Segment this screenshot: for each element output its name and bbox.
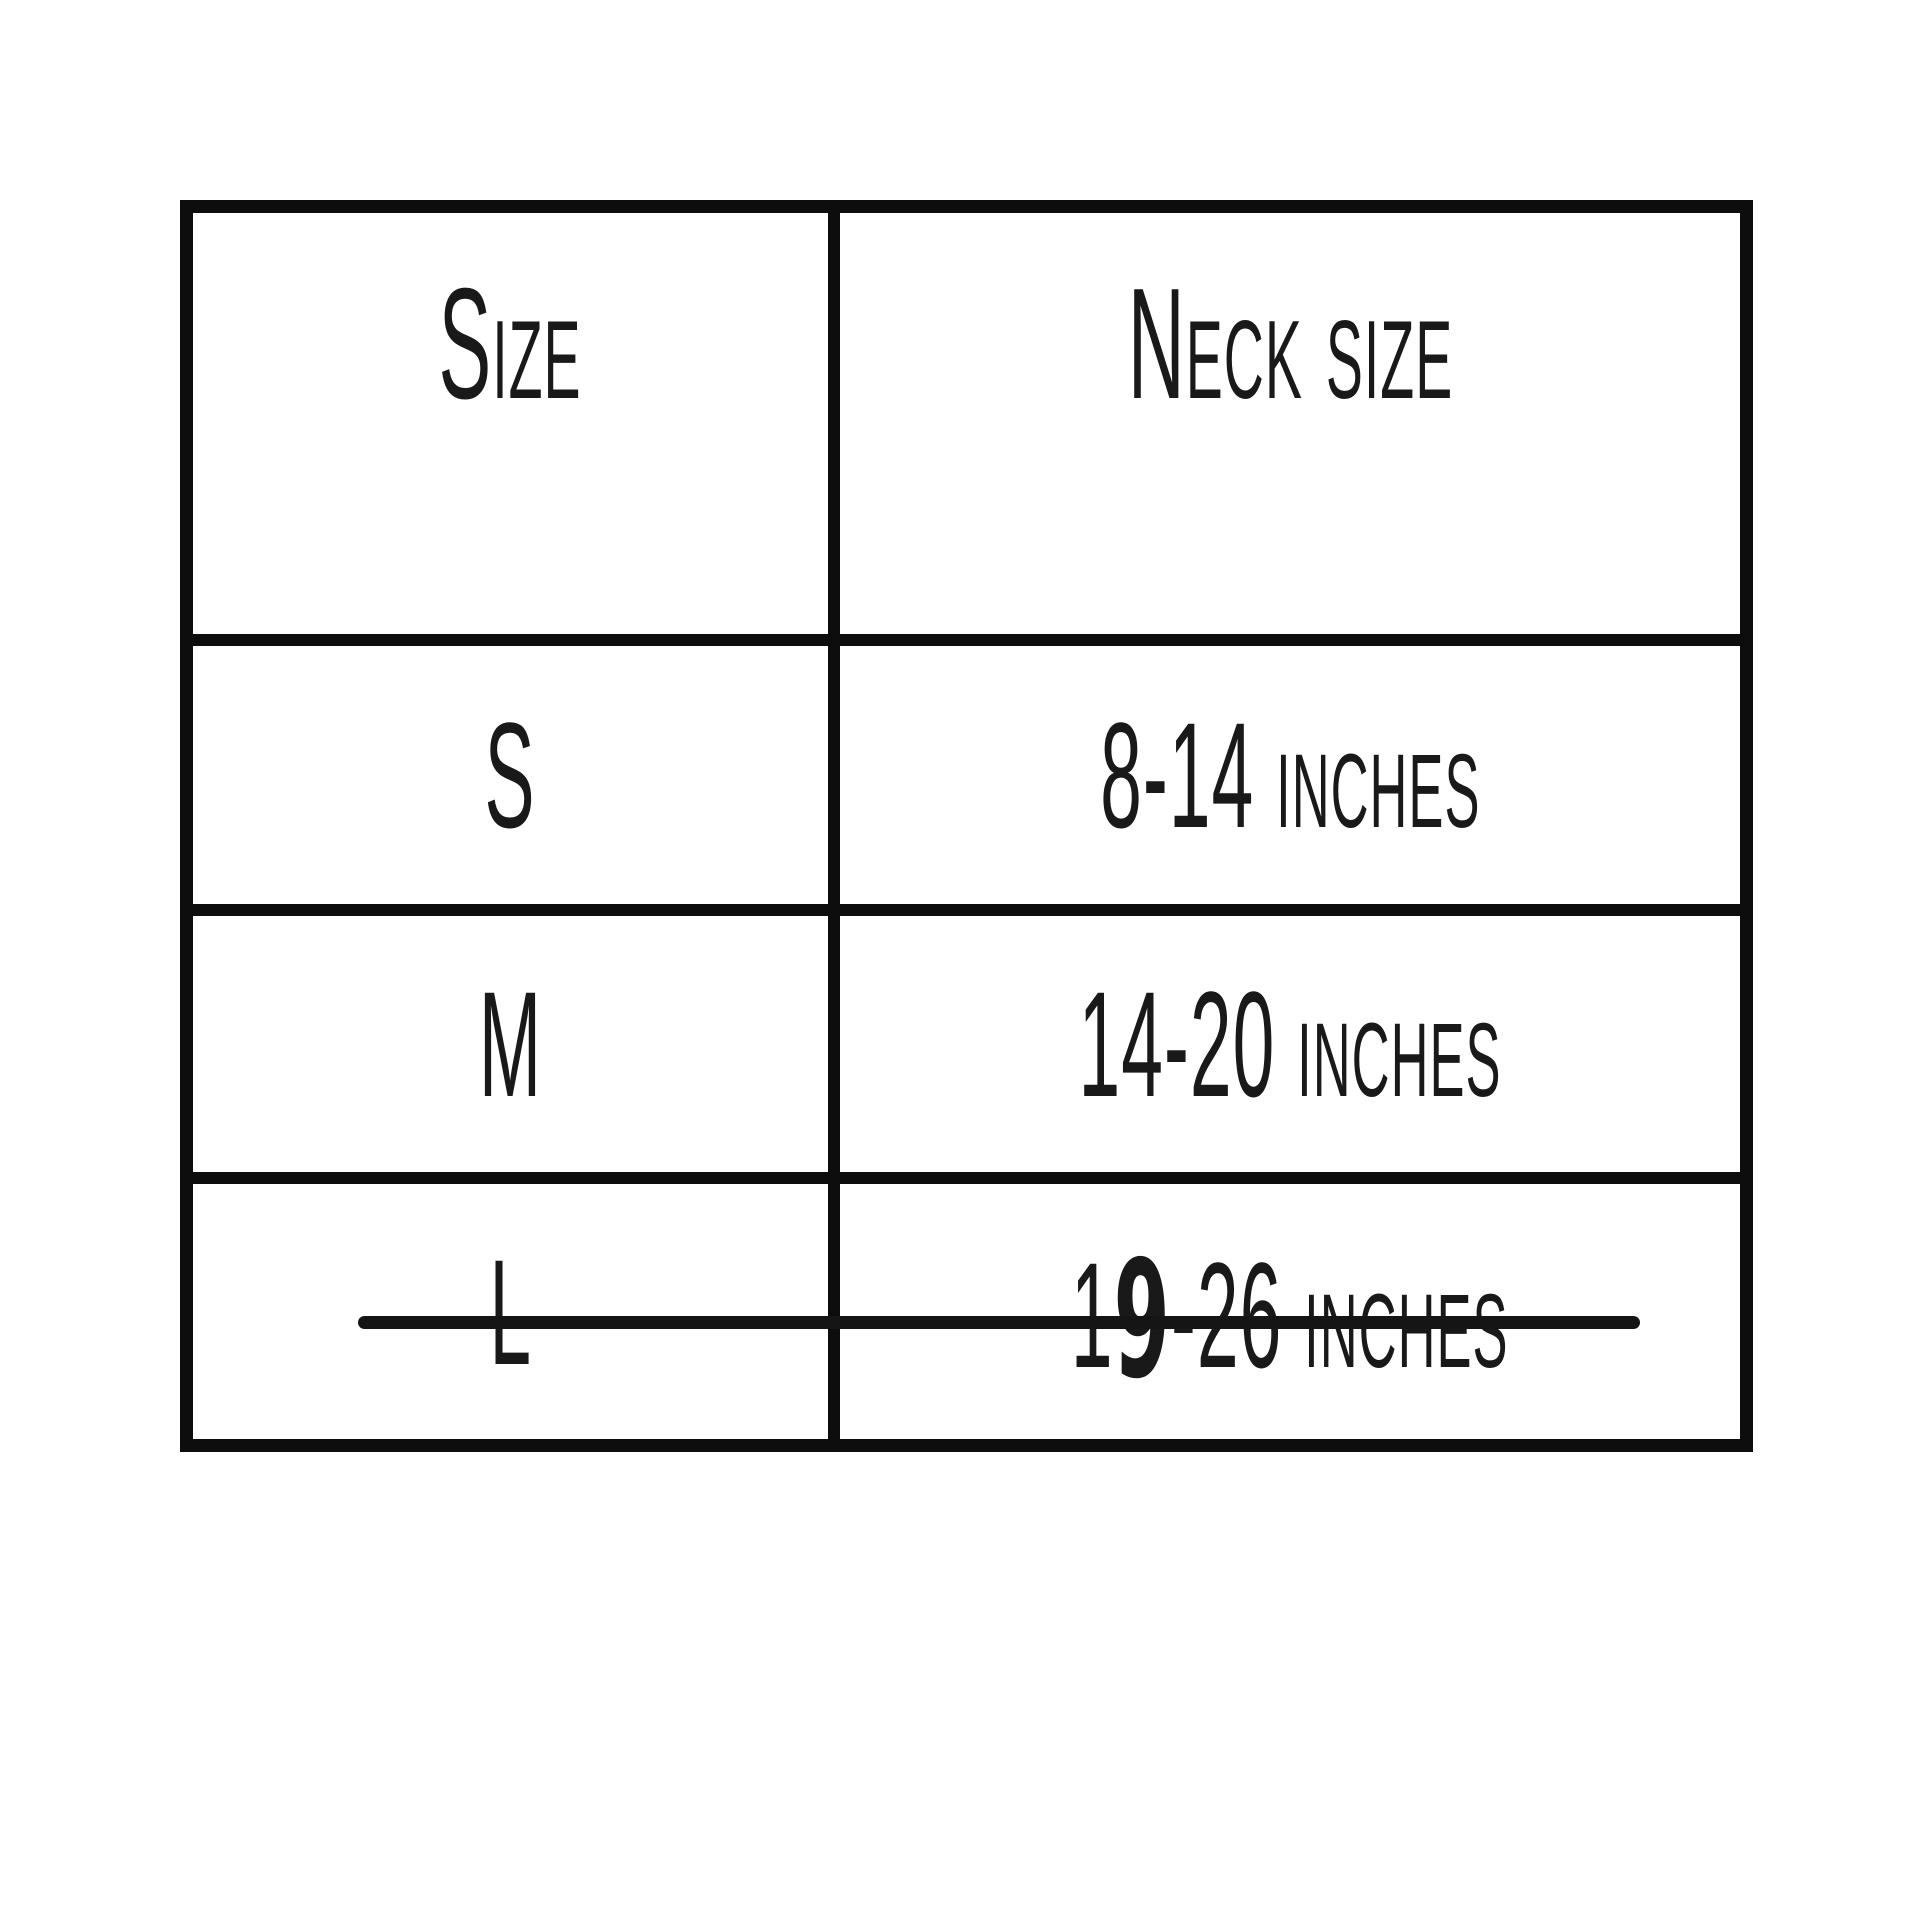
table-row-s-size-cell: S <box>193 646 828 904</box>
size-column-header: Size <box>439 265 582 423</box>
table-row-m-neck-cell: 14-20 inches <box>840 916 1740 1172</box>
size-m-neck-range: 14-20 inches <box>1078 969 1501 1119</box>
size-l-neck-range-printed-prefix: 1 <box>1071 1231 1114 1399</box>
size-s-neck-range: 8-14 inches <box>1100 700 1480 850</box>
table-row-l-neck-cell: 19-26 inches <box>840 1184 1740 1439</box>
table-row-m-size-cell: M <box>193 916 828 1172</box>
size-s-label: S <box>485 700 536 850</box>
size-m-label: M <box>479 969 542 1119</box>
strikethrough-line <box>358 1316 1640 1329</box>
table-row-l-size-cell: L <box>193 1184 828 1439</box>
header-cell-neck-size: Neck size <box>840 213 1740 634</box>
size-l-neck-range: 19-26 inches <box>1071 1231 1509 1393</box>
table-row-s-neck-cell: 8-14 inches <box>840 646 1740 904</box>
neck-size-column-header: Neck size <box>1127 265 1452 423</box>
size-l-label: L <box>489 1237 532 1387</box>
size-l-neck-range-printed-suffix: -26 inches <box>1171 1231 1509 1399</box>
size-chart-table: Size Neck size S 8-14 inches M 14-20 inc… <box>180 200 1753 1452</box>
size-chart-image: Size Neck size S 8-14 inches M 14-20 inc… <box>0 0 1920 1920</box>
header-cell-size: Size <box>193 213 828 634</box>
